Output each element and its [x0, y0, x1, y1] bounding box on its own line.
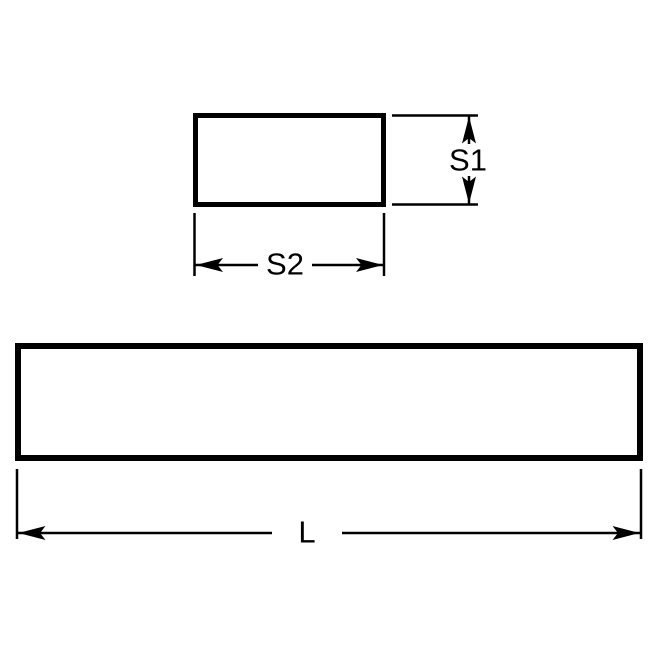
keystock-dimension-diagram: S1 S2 L — [0, 0, 670, 670]
dimension-label-s1: S1 — [449, 143, 487, 178]
cross-section-rectangle — [196, 116, 384, 205]
dimension-label-s2: S2 — [266, 247, 304, 282]
cross-section-view: S1 S2 — [195, 116, 487, 282]
dimension-label-length: L — [298, 515, 315, 550]
technical-drawing-canvas: S1 S2 L — [0, 0, 670, 670]
dimension-s2: S2 — [195, 213, 385, 282]
side-view-rectangle — [18, 346, 640, 458]
dimension-length: L — [17, 469, 641, 550]
dimension-s1: S1 — [392, 116, 487, 205]
side-view: L — [17, 346, 641, 550]
